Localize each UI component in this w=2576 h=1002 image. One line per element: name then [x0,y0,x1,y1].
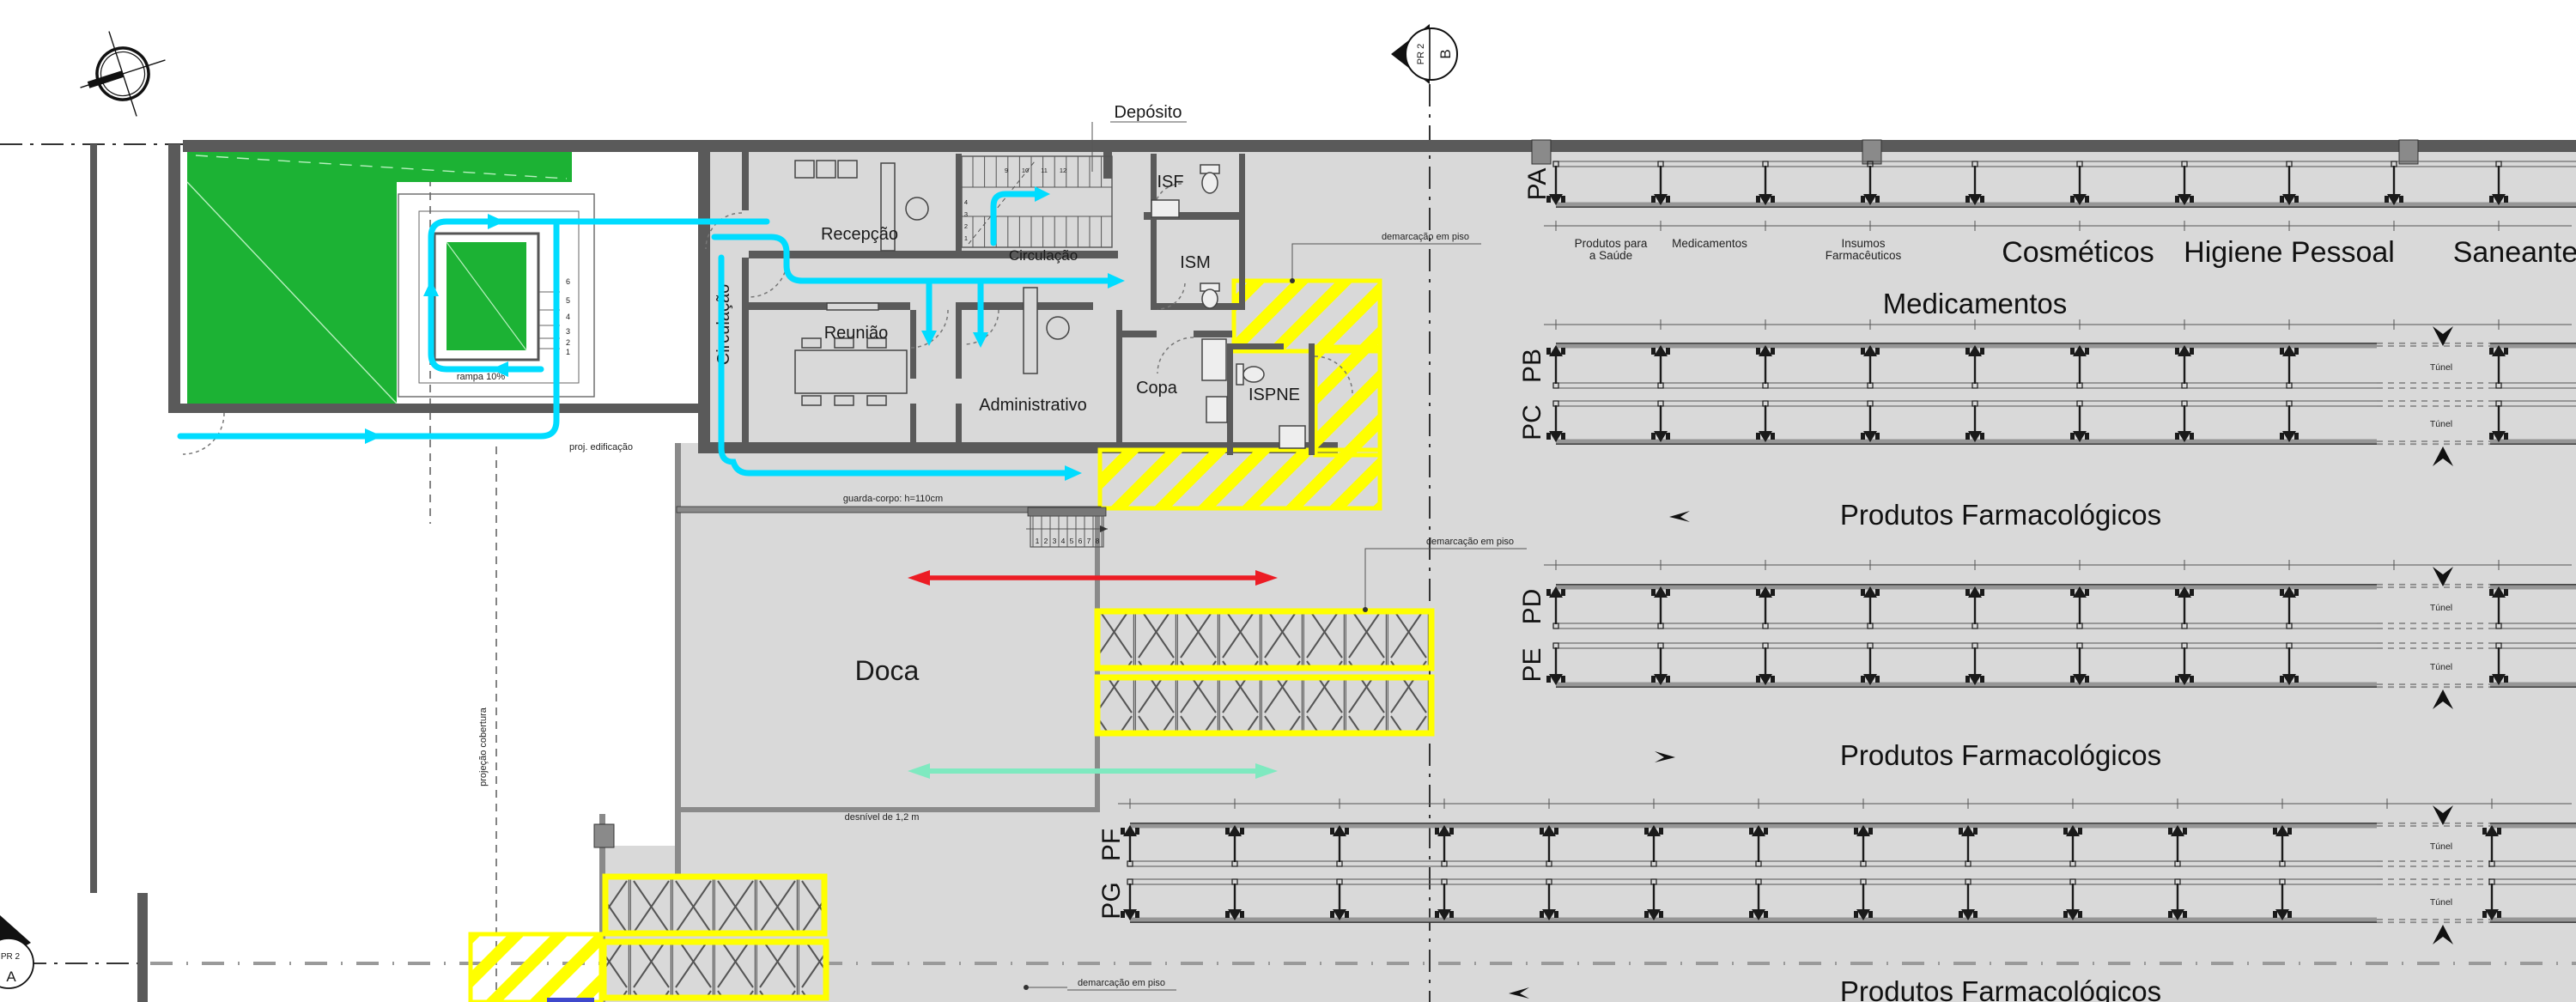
zone-label: Medicamentos [1883,288,2068,319]
svg-text:4: 4 [964,198,968,206]
demarcacao3-label: demarcação em piso [1078,978,1165,988]
sink-icon [1279,426,1305,448]
administrativo-label: Administrativo [979,396,1087,415]
svg-text:1: 1 [964,234,968,242]
office-chair [906,197,928,220]
svg-text:5: 5 [1070,537,1074,545]
svg-text:4: 4 [566,313,570,321]
demarcacao2-label: demarcação em piso [1426,537,1514,547]
desnivel-label: desnível de 1,2 m [845,812,920,823]
ispne-north-wall [1232,343,1284,349]
zone-label: Produtos Farmacológicos [1840,739,2161,771]
guarda-corpo-label: guarda-corpo: h=110cm [843,494,943,504]
conveyor-upper-2 [1097,677,1431,733]
zone-label: Produtos Farmacológicos [1840,499,2161,531]
admin-copa-divider [1116,310,1122,446]
category-small: Medicamentos [1672,237,1747,250]
tunnel-label: Túnel [2430,603,2452,613]
svg-text:6: 6 [1078,537,1083,545]
svg-text:3: 3 [566,327,570,336]
ism-fixtures [1200,283,1219,308]
arrowhead [423,280,439,296]
floor-region [599,140,2576,1002]
garden-wall-west [168,144,180,412]
rampa-label: rampa 10% [457,372,505,382]
meeting-table [795,350,907,393]
stair-west-wall [956,154,962,251]
marker-bottom-code: PR 2 [1,952,21,962]
ism-label: ISM [1180,253,1211,272]
rack-row-label-PF: PF [1097,829,1126,861]
tunnel-label: Túnel [2430,897,2452,908]
svg-text:10: 10 [1022,167,1029,174]
marker-bottom-letter: A [6,969,16,985]
svg-text:4: 4 [1061,537,1066,545]
rack-row-label-PG: PG [1097,882,1126,919]
demarcation-zone-southwest [471,934,601,1002]
isf-west-wall [1151,154,1157,310]
warehouse-floor [599,140,2576,1002]
svg-text:1: 1 [1036,537,1040,545]
category-large: Cosméticos [2002,236,2154,269]
svg-text:5: 5 [566,296,570,305]
blue-marker-bar [547,998,594,1002]
tunnel-label: Túnel [2430,362,2452,373]
marker-top-letter: B [1437,49,1454,58]
section-marker-bottom-left: PR 2 A [0,915,33,988]
ispne-east-wall [1309,343,1315,455]
conveyor-lower-1 [605,877,824,933]
demarcacao1-label: demarcação em piso [1382,232,1469,242]
conveyor-upper-1 [1097,611,1431,668]
svg-text:2: 2 [1044,537,1048,545]
svg-text:12: 12 [1060,167,1066,174]
corridor-south-wall-1 [742,302,910,310]
copa-counter [1202,339,1226,380]
arrowhead [488,214,505,229]
sink-icon [1151,200,1179,217]
rack-row-label-PA: PA [1523,168,1552,201]
zone-label: Produtos Farmacológicos [1840,975,2161,1002]
doca-label: Doca [855,655,920,686]
svg-text:2: 2 [566,338,570,347]
rack-row-label-PC: PC [1518,404,1546,440]
ispne-label: ISPNE [1249,386,1300,404]
reuniao-east-wall [910,310,916,379]
column [1532,140,1551,164]
category-small: Produtos para [1575,237,1648,250]
garden-area [187,152,594,404]
svg-text:11: 11 [1041,167,1048,174]
svg-text:a Saúde: a Saúde [1589,249,1632,262]
admin-west-wall [956,310,962,379]
svg-text:8: 8 [1096,537,1100,545]
rack-row-label-PB: PB [1518,349,1546,383]
dock-column [594,824,614,847]
rack-row-label-PE: PE [1518,647,1546,682]
reuniao-label: Reunião [824,324,889,343]
column [2399,140,2418,164]
north-wall [183,140,2576,152]
admin-desk [1024,288,1037,373]
projecao-cobertura-label: projeção cobertura [478,707,489,786]
category-large: Higiene Pessoal [2184,236,2395,269]
category-large: Saneantes [2453,236,2576,269]
section-marker-top: PR 2 B [1391,24,1457,84]
svg-text:1: 1 [566,348,570,356]
recepcao-south-wall [749,251,962,258]
column [1862,140,1881,164]
svg-text:6: 6 [566,277,570,286]
north-compass-icon [66,17,179,130]
whiteboard [827,303,878,310]
svg-text:Farmacêuticos: Farmacêuticos [1826,249,1902,262]
site-wall-southwest [137,893,148,1002]
toilet-icon [1236,364,1243,385]
site-wall-west [90,144,97,893]
copa-label: Copa [1136,379,1178,398]
arrowhead [365,428,382,444]
office-chair [1047,317,1069,339]
recepcao-label: Recepção [821,225,898,244]
svg-text:3: 3 [964,210,968,218]
svg-text:3: 3 [1053,537,1057,545]
garden-strip [187,152,572,182]
proj-edificacao-label: proj. edificação [569,442,633,452]
svg-text:7: 7 [1087,537,1091,545]
copa-north-wall [1122,331,1157,337]
garden-wall-south [168,404,709,413]
category-small: Insumos [1841,237,1885,250]
conveyor-lower-2 [604,942,826,998]
copa-sink [1206,397,1227,422]
svg-text:2: 2 [964,222,968,230]
ispne-west-wall [1227,343,1233,455]
tunnel-label: Túnel [2430,841,2452,852]
circulacao-h-label: Circulação [1009,247,1078,264]
tunnel-label: Túnel [2430,662,2452,672]
svg-text:9: 9 [1005,167,1008,174]
floor-plan: projeção cobertura 654321 rampa 10% [0,0,2576,1002]
office-wall-west [698,140,710,443]
tunnel-label: Túnel [2430,419,2452,429]
copa-fixtures [1202,339,1227,422]
isf-label: ISF [1157,173,1183,191]
marker-top-code: PR 2 [1416,44,1426,64]
ism-east-wall [1239,154,1245,310]
deposito-label: Depósito [1115,103,1182,122]
rack-row-label-PD: PD [1518,589,1546,625]
